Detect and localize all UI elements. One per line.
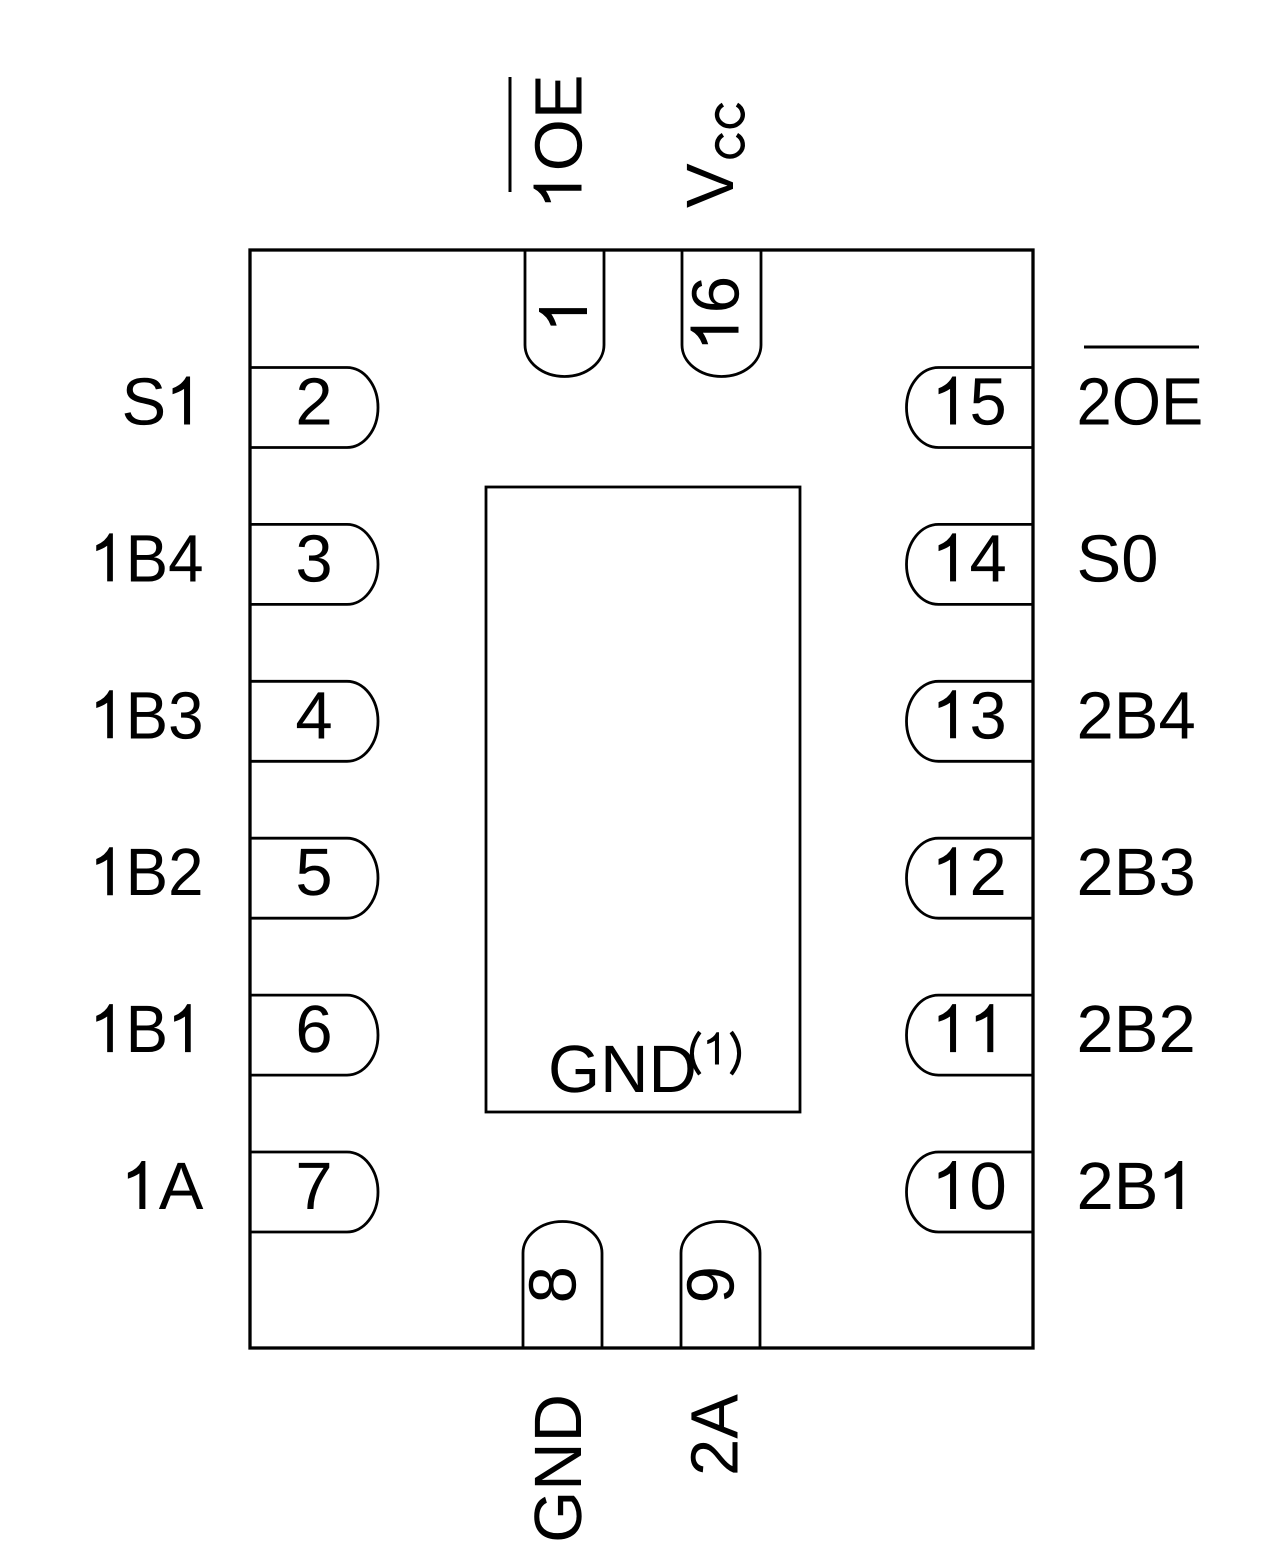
svg-text:5: 5 <box>970 365 1007 440</box>
svg-text:3: 3 <box>970 678 1007 753</box>
svg-text:0: 0 <box>970 1149 1007 1224</box>
svg-text:3: 3 <box>295 521 332 596</box>
svg-text:4: 4 <box>295 678 332 753</box>
svg-text:2B4: 2B4 <box>1077 678 1196 753</box>
svg-text:6: 6 <box>295 992 332 1067</box>
svg-text:2OE: 2OE <box>1077 365 1204 440</box>
svg-text:7: 7 <box>295 1149 332 1224</box>
svg-text:2B3: 2B3 <box>1077 835 1196 910</box>
svg-text:GND: GND <box>521 1394 596 1541</box>
svg-text:S: S <box>122 365 167 440</box>
svg-text:2B: 2B <box>1077 1149 1159 1224</box>
svg-text:5: 5 <box>295 835 332 910</box>
svg-text:2B2: 2B2 <box>1077 992 1196 1067</box>
svg-text:S0: S0 <box>1077 521 1159 596</box>
svg-text:2A: 2A <box>678 1394 753 1476</box>
svg-text:A: A <box>159 1149 204 1224</box>
svg-text:B3: B3 <box>126 678 204 753</box>
svg-text:B2: B2 <box>126 835 204 910</box>
svg-text:OE: OE <box>522 74 597 171</box>
svg-text:B: B <box>126 992 168 1067</box>
svg-text:2: 2 <box>970 835 1007 910</box>
svg-text:6: 6 <box>679 276 754 313</box>
svg-text:4: 4 <box>970 521 1007 596</box>
svg-text:B4: B4 <box>126 521 204 596</box>
svg-text:8: 8 <box>516 1266 591 1303</box>
svg-text:GND: GND <box>548 1032 697 1107</box>
svg-text:9: 9 <box>674 1266 749 1303</box>
svg-text:2: 2 <box>295 365 332 440</box>
svg-text:V: V <box>673 163 748 208</box>
